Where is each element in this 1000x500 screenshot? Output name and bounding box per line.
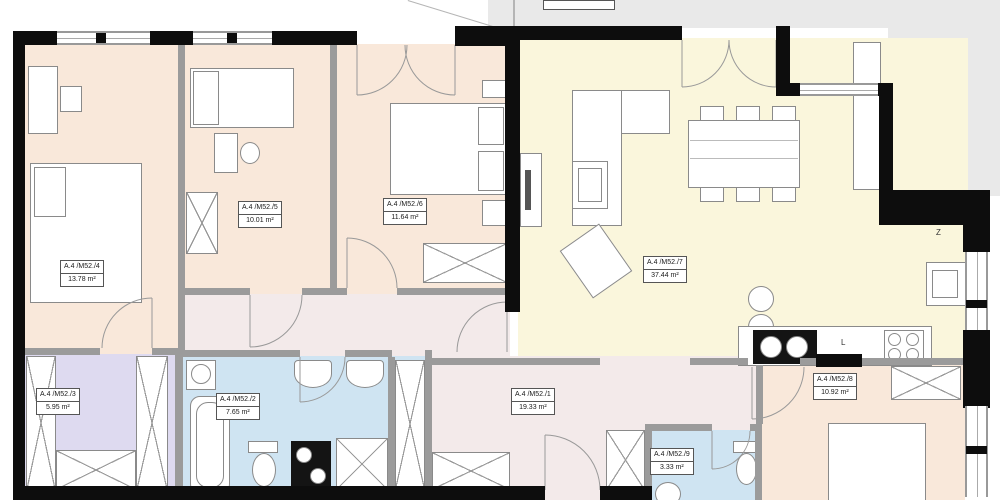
adjacent-unit-label-cropped — [543, 0, 615, 10]
window-mullion — [966, 446, 987, 454]
wall — [963, 225, 990, 252]
wall — [776, 26, 790, 96]
room-9-label: A.4 /M52./9 3.33 m² — [650, 448, 694, 475]
wall — [345, 350, 392, 357]
window-mullion — [227, 33, 237, 43]
wall — [150, 31, 193, 45]
wall — [458, 26, 682, 40]
room-2-label: A.4 /M52./2 7.65 m² — [216, 393, 260, 420]
room-8-label: A.4 /M52./8 10.92 m² — [813, 373, 857, 400]
wall — [505, 40, 520, 312]
window-mullion — [966, 300, 987, 308]
room-6-label: A.4 /M52./6 11.64 m² — [383, 198, 427, 225]
wall — [963, 330, 990, 408]
wall — [425, 350, 432, 500]
wall — [178, 44, 185, 354]
wall — [330, 44, 337, 294]
wall — [13, 486, 545, 500]
wall — [878, 83, 893, 96]
window[interactable] — [800, 83, 878, 96]
kitchen-z-mark: Z — [936, 228, 941, 237]
wall — [790, 83, 800, 96]
room-5-label: A.4 /M52./5 10.01 m² — [238, 201, 282, 228]
kitchen-l-mark: L — [841, 338, 845, 347]
room-3-label: A.4 /M52./3 5.95 m² — [36, 388, 80, 415]
wall — [816, 354, 862, 367]
floor-plan: L Z — [0, 0, 1000, 500]
wall — [645, 424, 712, 431]
wall — [175, 354, 183, 500]
wall — [756, 365, 763, 424]
wall — [13, 31, 25, 497]
wall — [432, 358, 600, 365]
wall — [183, 350, 300, 357]
wall — [755, 424, 762, 500]
wall — [397, 288, 510, 295]
wall — [388, 357, 395, 500]
window-mullion — [96, 33, 106, 43]
room-1-label: A.4 /M52./1 19.33 m² — [511, 388, 555, 415]
wall — [879, 96, 893, 196]
wall — [272, 31, 357, 45]
wall — [879, 190, 990, 225]
wall — [690, 358, 748, 365]
wall — [302, 288, 347, 295]
door-arcs-layer — [0, 0, 1000, 500]
room-7-label: A.4 /M52./7 37.44 m² — [643, 256, 687, 283]
wall — [185, 288, 250, 295]
wall — [600, 486, 652, 500]
room-4-label: A.4 /M52./4 13.78 m² — [60, 260, 104, 287]
window[interactable] — [965, 252, 988, 330]
wall — [23, 348, 100, 355]
